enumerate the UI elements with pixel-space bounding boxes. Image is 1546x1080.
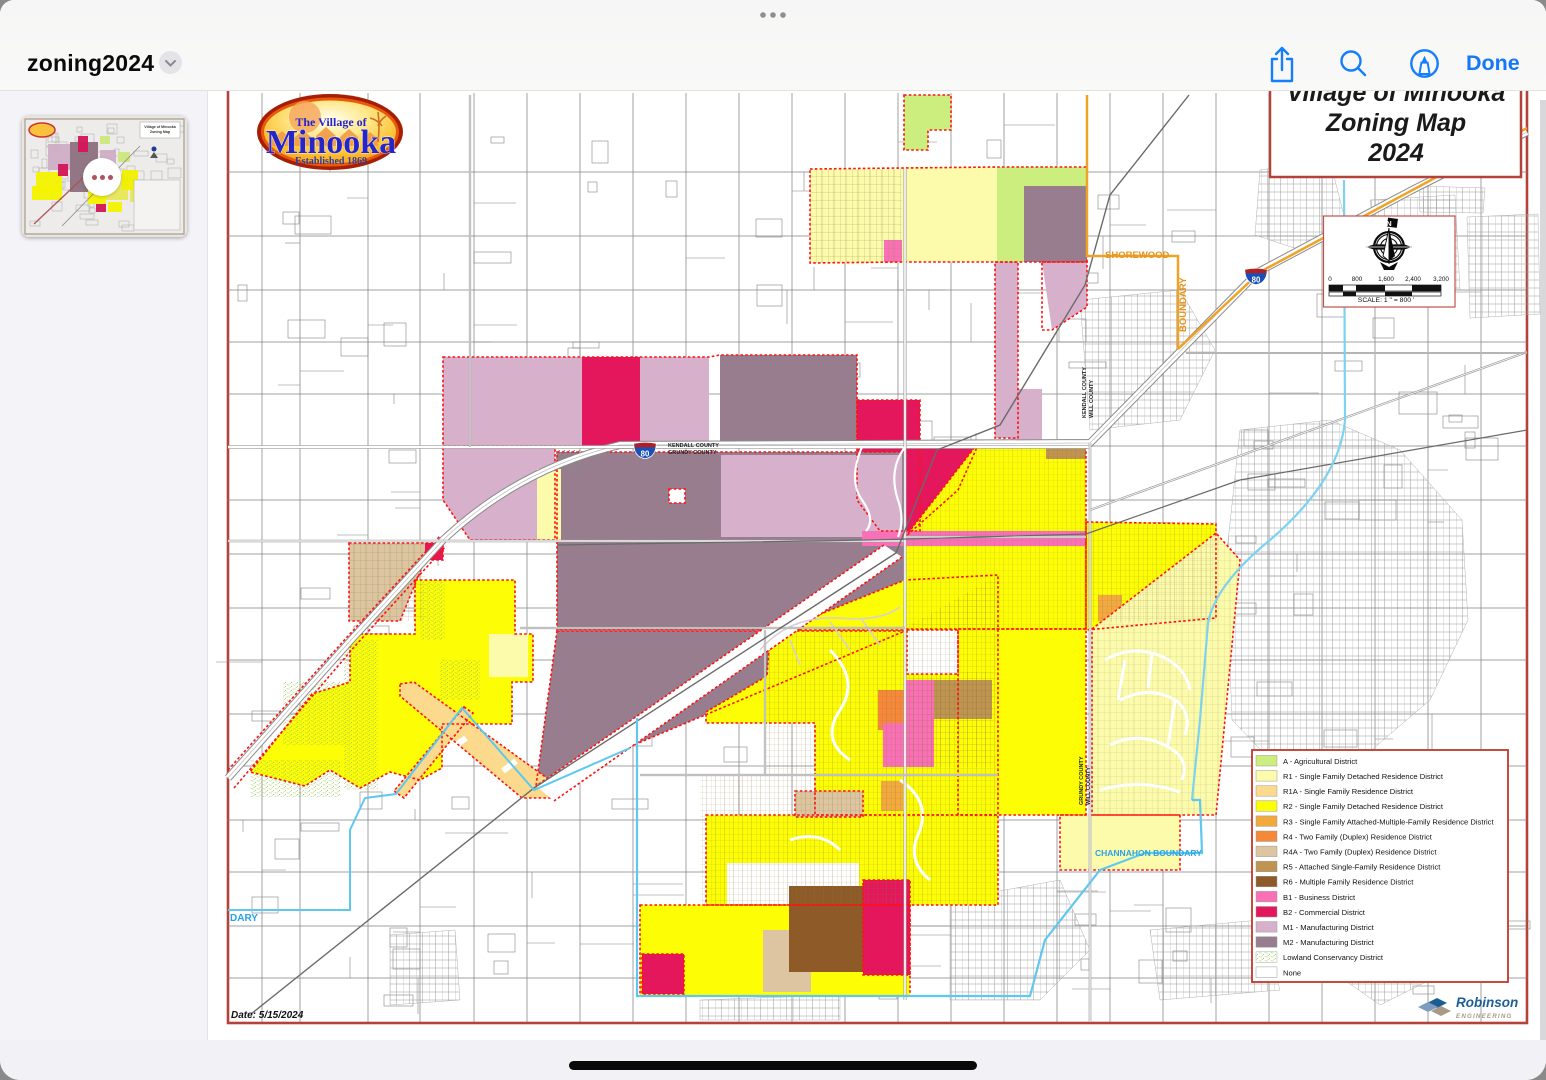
svg-text:GRUNDY COUNTY: GRUNDY COUNTY [668, 450, 717, 456]
svg-text:Robinson: Robinson [1456, 995, 1518, 1010]
svg-text:A - Agricultural District: A - Agricultural District [1283, 757, 1358, 766]
svg-text:B2 - Commercial District: B2 - Commercial District [1283, 908, 1366, 917]
svg-text:Established 1869: Established 1869 [295, 156, 367, 167]
svg-text:None: None [1283, 968, 1301, 977]
svg-text:R1A - Single Family Residence: R1A - Single Family Residence District [1283, 787, 1414, 796]
svg-text:80: 80 [641, 449, 650, 458]
svg-text:DARY: DARY [230, 913, 258, 924]
svg-text:BOUNDARY: BOUNDARY [1178, 277, 1189, 332]
svg-text:WILL COUNTY: WILL COUNTY [1086, 767, 1092, 805]
svg-text:SCALE: 1 " = 800 ': SCALE: 1 " = 800 ' [1358, 297, 1414, 304]
svg-text:N: N [1386, 219, 1391, 228]
svg-text:2024: 2024 [1367, 139, 1424, 167]
svg-text:KENDALL COUNTY: KENDALL COUNTY [1082, 367, 1088, 418]
svg-text:GRUNDY COUNTY: GRUNDY COUNTY [1079, 756, 1085, 805]
svg-text:R3 - Single Family Attached-Mu: R3 - Single Family Attached-Multiple-Fam… [1283, 817, 1494, 826]
svg-text:80: 80 [1252, 275, 1261, 284]
svg-text:KENDALL COUNTY: KENDALL COUNTY [668, 443, 719, 449]
svg-text:R6 - Multiple Family Residence: R6 - Multiple Family Residence District [1283, 878, 1414, 887]
svg-text:3,200: 3,200 [1433, 276, 1449, 283]
svg-text:B1 - Business District: B1 - Business District [1283, 893, 1356, 902]
svg-text:M2 - Manufacturing District: M2 - Manufacturing District [1283, 938, 1375, 947]
svg-text:CHANNAHON BOUNDARY: CHANNAHON BOUNDARY [1095, 848, 1202, 858]
svg-text:Zoning Map: Zoning Map [150, 130, 171, 134]
svg-text:2,400: 2,400 [1405, 276, 1421, 283]
svg-text:ENGINEERING: ENGINEERING [1456, 1013, 1513, 1020]
svg-text:0: 0 [1328, 276, 1332, 283]
svg-text:Lowland Conservancy District: Lowland Conservancy District [1283, 953, 1384, 962]
svg-text:R2 - Single Family Detached Re: R2 - Single Family Detached Residence Di… [1283, 802, 1444, 811]
svg-text:R5 - Attached Single-Family Re: R5 - Attached Single-Family Residence Di… [1283, 863, 1441, 872]
svg-text:R4A - Two Family (Duplex) Resi: R4A - Two Family (Duplex) Residence Dist… [1283, 848, 1437, 857]
svg-text:1,600: 1,600 [1378, 276, 1394, 283]
svg-text:R1 - Single Family Detached Re: R1 - Single Family Detached Residence Di… [1283, 772, 1444, 781]
svg-text:SHOREWOOD: SHOREWOOD [1105, 250, 1170, 261]
svg-text:WILL COUNTY: WILL COUNTY [1089, 380, 1095, 418]
svg-text:M1 - Manufacturing District: M1 - Manufacturing District [1283, 923, 1375, 932]
svg-text:Village of Minooka: Village of Minooka [144, 125, 176, 129]
svg-text:800: 800 [1352, 276, 1363, 283]
svg-text:Date: 5/15/2024: Date: 5/15/2024 [231, 1010, 304, 1021]
svg-text:Zoning Map: Zoning Map [1325, 109, 1466, 137]
svg-text:R4 - Two Family (Duplex) Resid: R4 - Two Family (Duplex) Residence Distr… [1283, 832, 1433, 841]
